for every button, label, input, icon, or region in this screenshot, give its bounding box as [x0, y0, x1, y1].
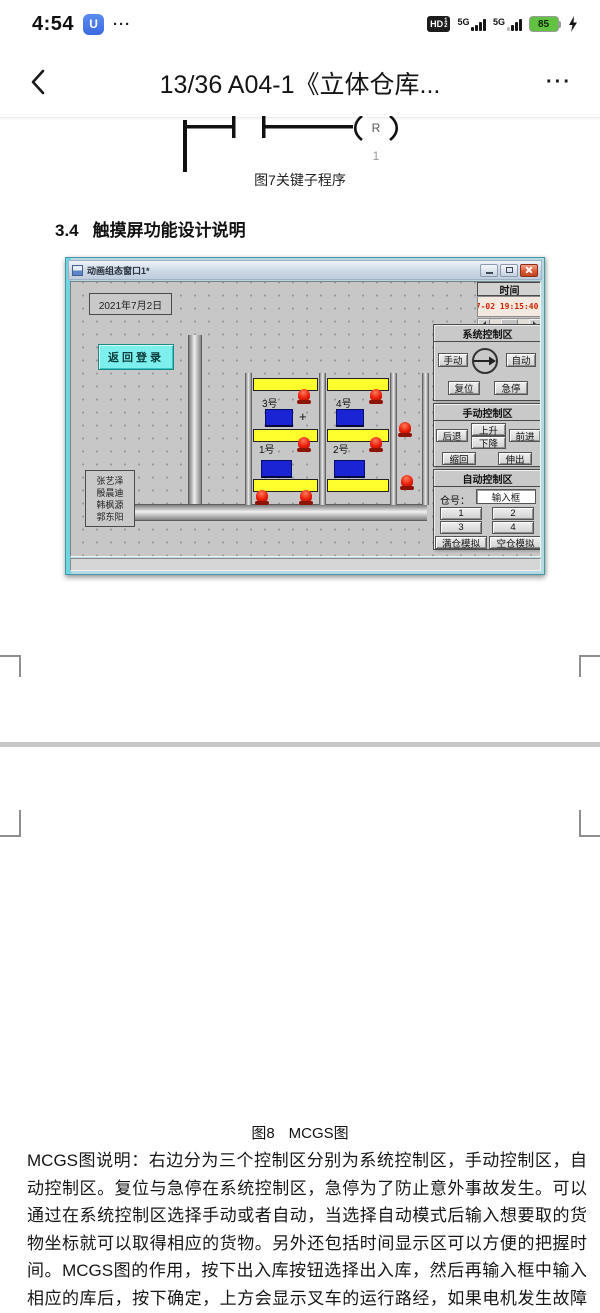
signal-bars-2 — [507, 19, 522, 31]
team-name-2: 殷晨迪 — [96, 487, 123, 499]
clock: 4:54 — [32, 13, 74, 36]
rack-post-1 — [245, 373, 252, 505]
alarm-lamp-bin1 — [297, 437, 311, 452]
empty-bin-sim-button: 空仓模拟 — [489, 536, 541, 549]
figure7-caption: 图7关键子程序 — [0, 170, 600, 190]
manual-control-title: 手动控制区 — [434, 404, 541, 421]
team-names-box: 张艺泽 殷晨迪 韩枫源 郭东阳 — [85, 470, 135, 527]
section-number: 3.4 — [55, 221, 79, 240]
coil-number: 1 — [373, 149, 380, 163]
vertical-pipe — [188, 335, 202, 507]
status-left: 4:54 U ··· — [32, 13, 131, 36]
page-break-band — [0, 742, 600, 747]
window-title: 动画组态窗口1* — [87, 264, 150, 277]
status-right: HD 12 5G 5G 85 — [427, 16, 578, 32]
figure8-caption: 图8MCGS图 — [0, 1122, 600, 1143]
manual-mode-button: 手动 — [438, 353, 468, 367]
section-title: 触摸屏功能设计说明 — [93, 221, 246, 240]
mode-selector-switch — [472, 348, 498, 374]
bin-4-label: 4号 — [336, 395, 352, 410]
bin-number-label: 仓号： — [440, 492, 470, 507]
signal-1-icon: 5G — [457, 17, 486, 31]
charging-bolt-icon — [568, 16, 578, 32]
cargo-bin2 — [334, 460, 365, 478]
crosshair-marker: + — [299, 409, 307, 424]
hd-volte-icon: HD 12 — [427, 16, 450, 32]
back-button[interactable] — [22, 66, 54, 98]
signal-bars-1 — [471, 19, 486, 31]
up-button: 上升 — [471, 423, 506, 436]
status-bar: 4:54 U ··· HD 12 5G 5G 85 — [0, 0, 600, 48]
network-type-1: 5G — [457, 17, 469, 27]
rack-post-4 — [422, 373, 429, 505]
rack-post-2 — [319, 373, 326, 505]
signal-2-icon: 5G — [493, 17, 522, 31]
alarm-lamp-conveyor-2 — [299, 490, 313, 505]
reset-button: 复位 — [448, 381, 480, 395]
hd-sim-numbers: 12 — [444, 19, 447, 29]
bin-1-label: 1号 — [259, 441, 275, 456]
retract-button: 缩回 — [442, 452, 476, 465]
back-login-button: 返回登录 — [98, 344, 174, 370]
document-title: 13/36 A04-1《立体仓库... — [70, 65, 530, 101]
horizontal-conveyor — [135, 504, 427, 521]
date-display: 2021年7月2日 — [89, 293, 172, 315]
time-panel-header: 时间 — [477, 282, 541, 296]
auto-control-title: 自动控制区 — [434, 470, 541, 487]
mcgs-titlebar: 动画组态窗口1* — [68, 260, 542, 280]
close-icon — [520, 264, 538, 277]
extend-button: 伸出 — [498, 452, 532, 465]
alarm-lamp-conveyor-1 — [255, 490, 269, 505]
manual-control-panel: 手动控制区 上升 下降 后退 前进 缩回 伸出 — [433, 403, 541, 467]
system-control-panel: 系统控制区 手动 自动 复位 急停 — [433, 324, 541, 401]
more-menu-button[interactable]: ··· — [536, 62, 582, 102]
alarm-lamp-right-lower — [400, 475, 414, 490]
cargo-bin4 — [336, 409, 364, 427]
bin-3-label: 3号 — [262, 395, 278, 410]
system-control-title: 系统控制区 — [434, 325, 541, 342]
alarm-lamp-bin2 — [369, 437, 383, 452]
arrow-right-icon — [474, 356, 496, 366]
cargo-bin3 — [265, 409, 293, 427]
full-bin-sim-button: 满仓模拟 — [435, 536, 487, 549]
phone-screen: 4:54 U ··· HD 12 5G 5G 85 — [0, 0, 600, 1313]
estop-button: 急停 — [494, 381, 528, 395]
battery-cap — [559, 21, 562, 28]
forward-button: 前进 — [509, 429, 541, 442]
mcgs-client-area: 2021年7月2日 时间 07-02 19:15:40.1 返回登录 — [70, 281, 541, 557]
window-icon — [72, 265, 83, 276]
bin-3-button: 3 — [440, 521, 482, 534]
status-ellipsis-icon: ··· — [113, 16, 131, 33]
team-name-4: 郭东阳 — [96, 511, 123, 523]
page2-corner-mark-right — [579, 810, 600, 837]
bin-4-button: 4 — [492, 521, 534, 534]
alarm-lamp-bin3 — [297, 389, 311, 404]
mcgs-window-figure: 动画组态窗口1* 2021年7月2日 时间 07-02 19:15:40.1 返… — [65, 257, 545, 575]
minimize-icon — [480, 264, 498, 277]
maximize-icon — [500, 264, 518, 277]
auto-control-panel: 自动控制区 仓号： 输入框 1 2 3 4 满仓模拟 空仓模拟 — [433, 469, 541, 550]
bin-2-button: 2 — [492, 507, 534, 520]
network-type-2: 5G — [493, 17, 505, 27]
mcgs-statusbar — [70, 558, 541, 571]
hd-label: HD — [430, 19, 443, 29]
window-controls — [480, 264, 538, 277]
auto-mode-button: 自动 — [506, 353, 536, 367]
alarm-lamp-bin4 — [369, 389, 383, 404]
battery-icon: 85 — [529, 16, 562, 32]
team-name-3: 韩枫源 — [96, 499, 123, 511]
down-button: 下降 — [471, 436, 506, 449]
section-heading: 3.4触摸屏功能设计说明 — [55, 216, 246, 241]
alarm-lamp-right-upper — [398, 422, 412, 437]
bin-1-button: 1 — [440, 507, 482, 520]
bin-number-input: 输入框 — [476, 489, 536, 504]
page1-corner-mark-right — [579, 655, 600, 677]
figure8-name: MCGS图 — [289, 1125, 349, 1142]
battery-level: 85 — [529, 16, 559, 32]
ladder-diagram: R 1 — [0, 116, 600, 172]
app-notification-icon: U — [83, 14, 104, 35]
team-name-1: 张艺泽 — [96, 475, 123, 487]
nav-bar: 13/36 A04-1《立体仓库... ··· — [0, 48, 600, 118]
backward-button: 后退 — [436, 429, 468, 442]
figure8-number: 图8 — [251, 1125, 274, 1142]
shelf-bottom-right — [327, 479, 389, 492]
coil-label: R — [372, 121, 381, 135]
page1-corner-mark-left — [0, 655, 21, 677]
chevron-left-icon — [31, 69, 45, 95]
page2-corner-mark-left — [0, 810, 21, 837]
cargo-bin1 — [261, 460, 292, 478]
time-display: 07-02 19:15:40.1 — [477, 296, 541, 317]
mcgs-description-paragraph: MCGS图说明：右边分为三个控制区分别为系统控制区，手动控制区，自动控制区。复位… — [27, 1147, 587, 1313]
bin-2-label: 2号 — [333, 441, 349, 456]
rack-post-3 — [390, 373, 397, 505]
